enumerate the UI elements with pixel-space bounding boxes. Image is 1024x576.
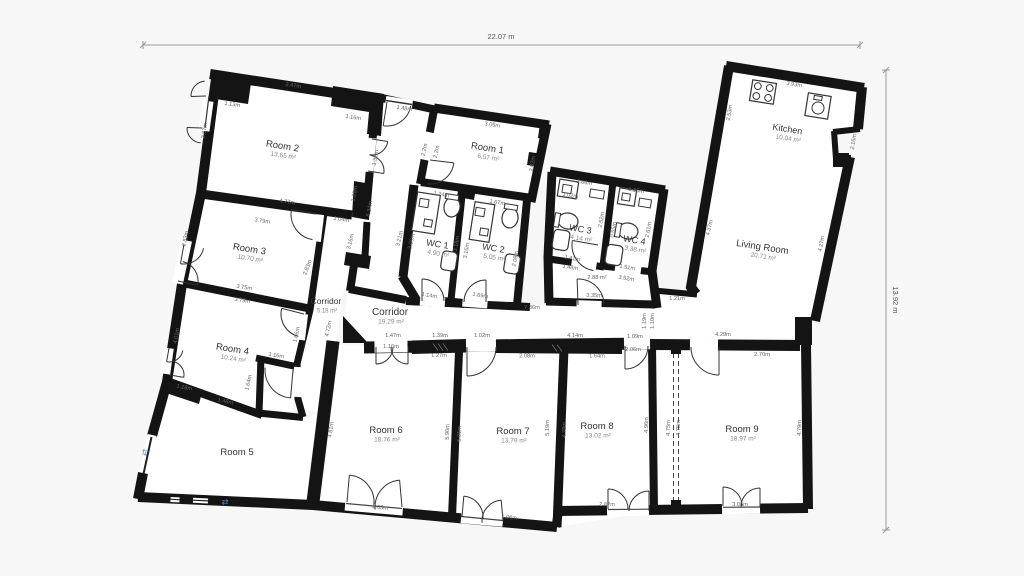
svg-text:Room 6: Room 6 (369, 425, 402, 436)
svg-text:4.96m: 4.96m (644, 417, 650, 433)
svg-text:4.78m: 4.78m (562, 422, 568, 438)
svg-text:1.64m: 1.64m (589, 354, 605, 360)
svg-text:4.14m: 4.14m (567, 333, 583, 339)
svg-text:1.47m: 1.47m (385, 333, 401, 339)
svg-text:Room 8: Room 8 (580, 421, 613, 432)
svg-text:4.29m: 4.29m (715, 332, 731, 338)
svg-text:2.06m: 2.06m (625, 347, 641, 353)
svg-text:13.92 m: 13.92 m (891, 286, 900, 313)
svg-text:1.10m: 1.10m (650, 313, 656, 329)
svg-text:Room 9: Room 9 (725, 424, 758, 435)
svg-text:2.08m: 2.08m (519, 354, 535, 360)
svg-text:1.09m: 1.09m (627, 334, 643, 340)
svg-text:⇄: ⇄ (222, 497, 229, 506)
svg-text:5.90m: 5.90m (445, 424, 452, 440)
svg-text:1.16m: 1.16m (383, 344, 399, 350)
svg-text:18.97 m²: 18.97 m² (730, 436, 756, 443)
svg-text:4.79m: 4.79m (797, 420, 804, 436)
svg-text:Room 5: Room 5 (220, 447, 253, 458)
svg-text:Room 7: Room 7 (496, 426, 529, 437)
svg-text:18.76 m²: 18.76 m² (374, 437, 400, 444)
svg-text:5.18 m²: 5.18 m² (317, 309, 337, 315)
svg-text:Corridor: Corridor (311, 296, 342, 306)
svg-text:3.35m: 3.35m (586, 293, 602, 300)
svg-text:5.01m: 5.01m (457, 426, 464, 442)
svg-text:2.87m: 2.87m (599, 502, 615, 508)
svg-text:1.02m: 1.02m (474, 333, 490, 339)
svg-text:Corridor: Corridor (372, 307, 409, 318)
svg-text:2.88 m²: 2.88 m² (587, 275, 606, 281)
svg-text:4.75m: 4.75m (676, 420, 682, 436)
svg-text:13.79 m²: 13.79 m² (501, 438, 527, 445)
svg-text:1.21m: 1.21m (669, 296, 685, 302)
svg-text:2.70m: 2.70m (754, 352, 770, 358)
svg-text:3.06m: 3.06m (732, 502, 748, 508)
svg-text:5.19m: 5.19m (545, 420, 551, 436)
svg-text:1.19m: 1.19m (642, 313, 648, 329)
svg-text:7.36m: 7.36m (524, 305, 540, 311)
svg-text:1.27m: 1.27m (431, 353, 447, 359)
svg-text:22.07 m: 22.07 m (487, 32, 514, 41)
svg-text:19.29 m²: 19.29 m² (378, 319, 404, 326)
svg-text:13.02 m²: 13.02 m² (585, 433, 611, 440)
svg-text:4.75m: 4.75m (666, 420, 672, 436)
svg-text:1.39m: 1.39m (432, 333, 448, 339)
